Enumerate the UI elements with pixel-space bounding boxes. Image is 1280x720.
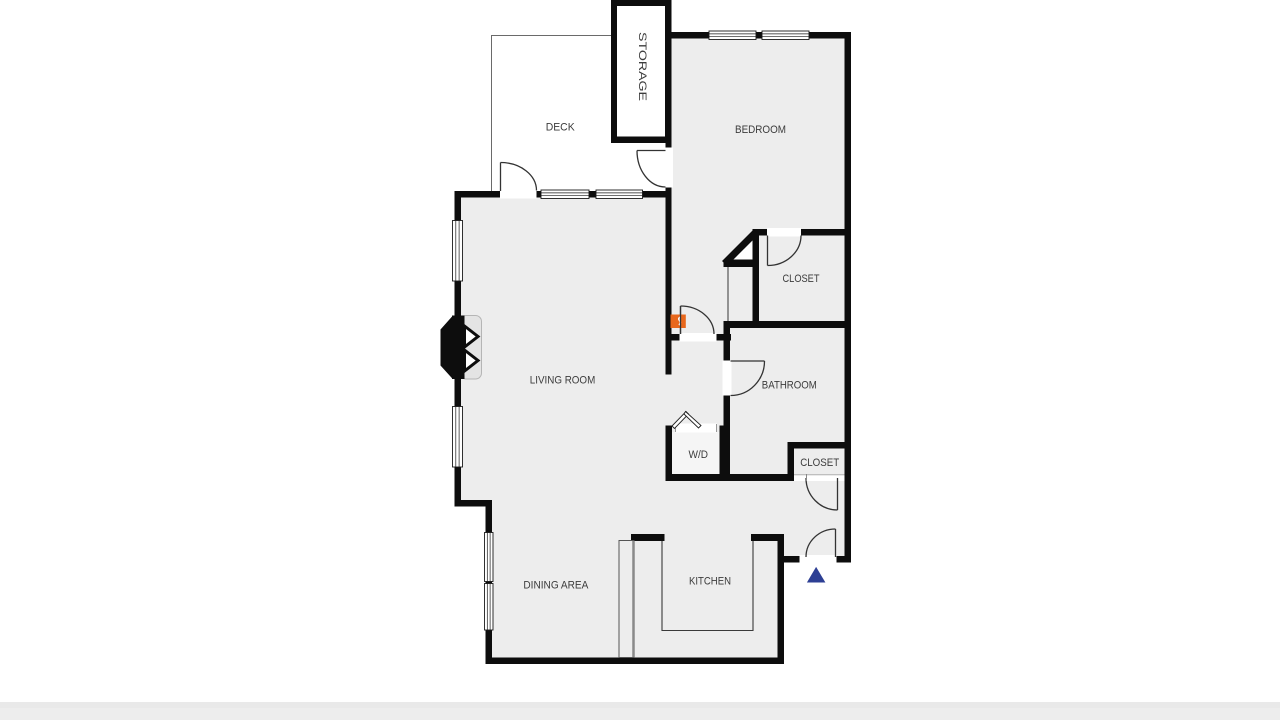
svg-text:DINING AREA: DINING AREA	[523, 580, 588, 592]
svg-text:CLOSET: CLOSET	[783, 273, 820, 285]
svg-text:W/D: W/D	[689, 449, 709, 461]
svg-text:STORAGE: STORAGE	[636, 32, 648, 101]
svg-text:KITCHEN: KITCHEN	[689, 575, 731, 587]
svg-text:CLOSET: CLOSET	[800, 457, 839, 469]
svg-text:LIVING ROOM: LIVING ROOM	[530, 375, 596, 387]
svg-text:BATHROOM: BATHROOM	[762, 379, 817, 391]
svg-text:DECK: DECK	[546, 122, 575, 134]
svg-text:BEDROOM: BEDROOM	[735, 124, 786, 136]
